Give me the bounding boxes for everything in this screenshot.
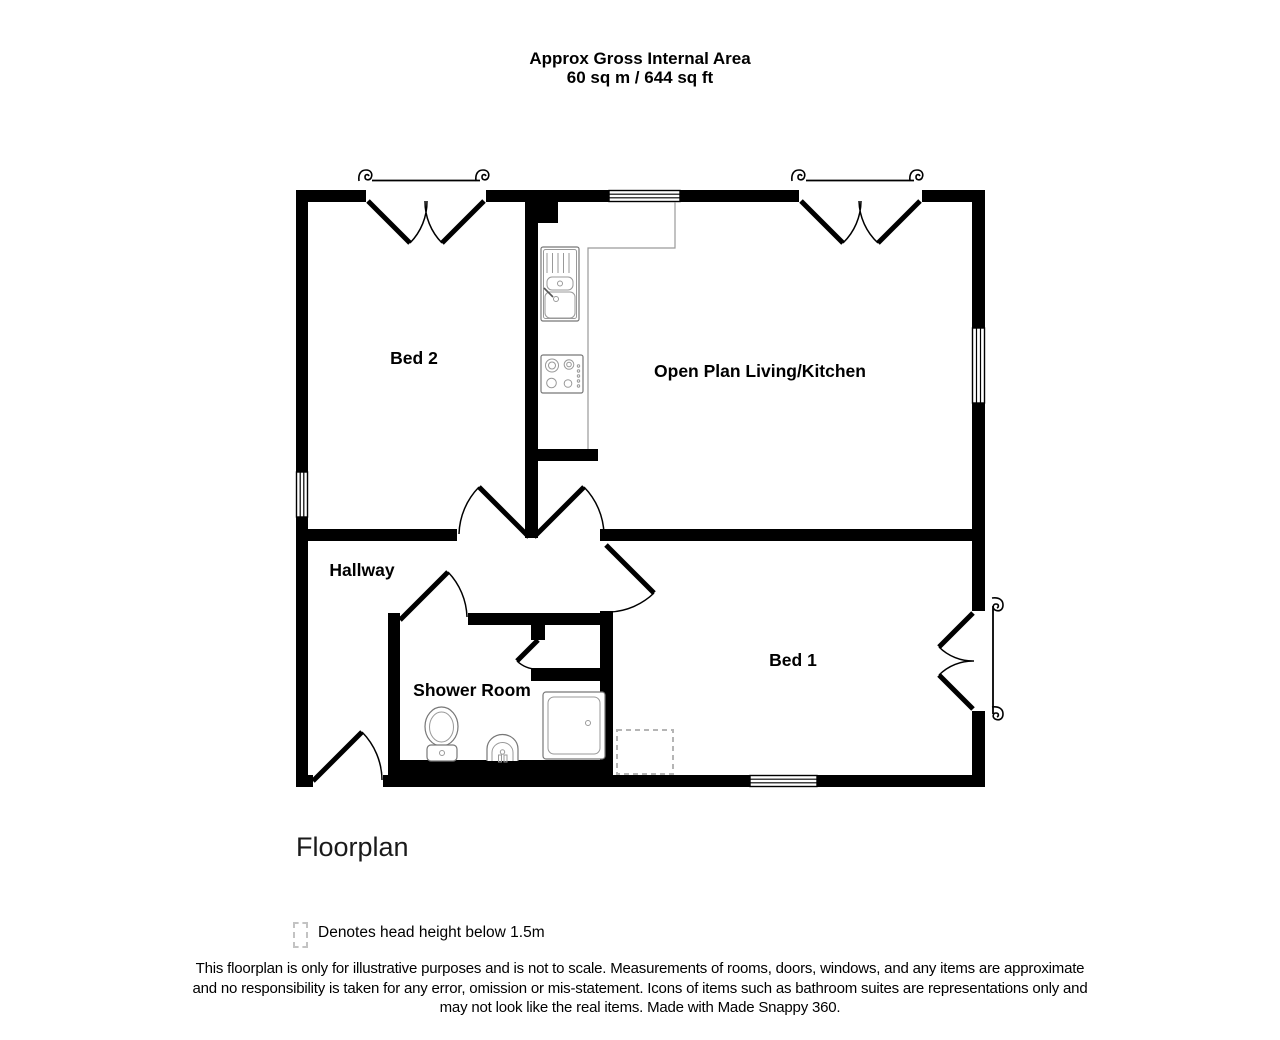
disclaimer-line-1: This floorplan is only for illustrative …	[0, 959, 1280, 979]
window-right	[973, 328, 985, 403]
entrance-door	[313, 732, 382, 781]
head-height-legend-icon	[293, 922, 308, 948]
room-label-shower: Shower Room	[413, 680, 531, 700]
plan-title: Floorplan	[296, 832, 409, 863]
shower-room-door	[400, 572, 467, 620]
window-top	[609, 191, 680, 202]
floorplan-page: Approx Gross Internal Area 60 sq m / 644…	[0, 0, 1280, 1040]
window-left	[297, 472, 308, 517]
living-door	[534, 487, 604, 537]
toilet-icon	[425, 707, 458, 761]
bed2-door	[459, 487, 529, 537]
shower-tray-icon	[543, 692, 605, 759]
disclaimer: This floorplan is only for illustrative …	[0, 959, 1280, 1018]
bed2-french-doors	[359, 170, 489, 243]
interior-walls	[296, 202, 972, 787]
head-height-legend-label: Denotes head height below 1.5m	[318, 924, 545, 942]
room-label-bed1: Bed 1	[769, 650, 817, 670]
bed1-door	[606, 545, 654, 612]
basin-icon	[487, 735, 518, 763]
room-label-bed2: Bed 2	[390, 348, 438, 368]
hob-icon	[541, 355, 583, 393]
window-bottom	[750, 776, 817, 787]
room-label-living: Open Plan Living/Kitchen	[654, 361, 866, 381]
disclaimer-line-2: and no responsibility is taken for any e…	[0, 979, 1280, 999]
living-french-doors	[792, 170, 923, 243]
floorplan-drawing: Bed 2 Open Plan Living/Kitchen Hallway S…	[0, 0, 1280, 820]
disclaimer-line-3: may not look like the real items. Made w…	[0, 998, 1280, 1018]
head-height-area	[617, 730, 673, 774]
room-label-hallway: Hallway	[329, 560, 394, 580]
bed1-french-doors	[939, 598, 1003, 720]
kitchen-sink-icon	[541, 247, 579, 321]
kitchen-counter-outline	[588, 202, 675, 449]
cupboard-door	[517, 640, 538, 669]
